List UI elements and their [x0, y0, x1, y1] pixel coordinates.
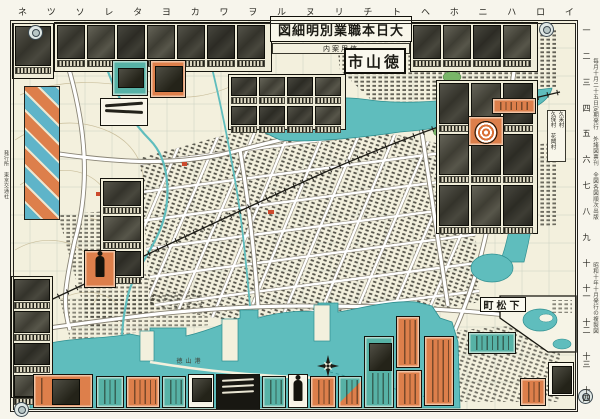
- village-names: 久米村: [557, 111, 565, 161]
- grid-kana-label: ロ: [536, 5, 545, 19]
- photo-caption: [103, 242, 141, 249]
- photo-caption: [15, 67, 51, 74]
- photo-caption: [503, 227, 533, 234]
- grid-kana-label: ル: [277, 5, 286, 19]
- photo-image: [443, 25, 471, 59]
- photo-caption: [503, 125, 533, 132]
- photo-thumbnail: [287, 106, 313, 133]
- grid-number-label: 一: [580, 26, 592, 34]
- ad-box-photo: [548, 362, 574, 396]
- photo-caption: [103, 207, 141, 214]
- photo-image: [439, 83, 469, 124]
- grid-kana-label: ヲ: [248, 5, 257, 19]
- photo-thumbnail: [57, 25, 85, 67]
- ad-box-orange: [126, 376, 160, 408]
- ad-box-figure: [84, 250, 116, 288]
- ad-box-orange: [396, 370, 422, 408]
- corner-seal-icon: [539, 22, 554, 37]
- grid-kana-label: ネ: [18, 5, 27, 19]
- photo-thumbnail: [14, 279, 50, 309]
- photo-caption: [473, 60, 501, 67]
- photo-image: [87, 25, 115, 59]
- edge-note-right-bottom: 昭和十年十月発行の複製図: [591, 262, 599, 392]
- ad-box-orange: [492, 98, 536, 114]
- ad-box-logo: [100, 98, 148, 126]
- photo-thumbnail: [87, 25, 115, 67]
- village-direction-box: 久保村 花岡村 久米村: [547, 110, 566, 162]
- photo-thumbnail: [503, 185, 533, 234]
- photo-thumbnail: [103, 216, 141, 249]
- photo-image: [439, 185, 469, 226]
- village-names: 久保村 花岡村: [549, 111, 557, 161]
- photo-image: [259, 77, 285, 96]
- ad-box-teal: [262, 376, 286, 408]
- photo-caption: [287, 97, 313, 104]
- ad-box-orange: [424, 336, 454, 406]
- ad-box-orange-photo: [33, 374, 93, 408]
- photo-caption: [14, 366, 50, 373]
- photo-caption: [439, 125, 469, 132]
- photo-thumbnail: [207, 25, 235, 67]
- ad-box-split: [338, 376, 362, 408]
- grid-kana-row: イロハニホヘトチリヌルヲワカヨタレソツネ: [18, 5, 574, 19]
- photo-image: [439, 134, 469, 175]
- map-sheet: イロハニホヘトチリヌルヲワカヨタレソツネ 一二三四五六七八九十十一十二十三十四 …: [0, 0, 600, 419]
- photo-caption: [471, 176, 501, 183]
- series-title: 図細明別業職本日大: [270, 16, 412, 42]
- photo-thumbnail: [439, 134, 469, 183]
- grid-kana-label: ハ: [507, 5, 516, 19]
- photo-image: [147, 25, 175, 59]
- grid-kana-label: ワ: [219, 5, 228, 19]
- photo-caption: [237, 60, 265, 67]
- photo-thumbnail: [315, 77, 341, 104]
- photo-caption: [315, 126, 341, 133]
- edge-note-left: 発行所 東京交通社: [2, 150, 9, 330]
- photo-thumbnail: [503, 134, 533, 183]
- photo-caption: [471, 227, 501, 234]
- photo-thumbnail: [231, 77, 257, 104]
- photo-image: [231, 77, 257, 96]
- photo-image: [57, 25, 85, 59]
- grid-kana-label: リ: [335, 5, 344, 19]
- photo-caption: [443, 60, 471, 67]
- ad-box-orange: [150, 60, 186, 98]
- grid-kana-label: チ: [363, 5, 372, 19]
- bullseye-logo-icon: [475, 121, 498, 144]
- photo-caption: [14, 334, 50, 341]
- ad-box-photo: [188, 374, 214, 408]
- photo-image: [287, 106, 313, 125]
- photo-caption: [439, 176, 469, 183]
- photo-image: [503, 134, 533, 175]
- grid-kana-label: ヌ: [306, 5, 315, 19]
- photo-cluster-top-row-right: [410, 22, 538, 72]
- ad-box-bullseye: [468, 116, 504, 146]
- figure-silhouette-icon: [96, 256, 105, 277]
- photo-caption: [413, 60, 441, 67]
- photo-thumbnail: [503, 25, 531, 67]
- photo-image: [503, 185, 533, 226]
- photo-caption: [57, 60, 85, 67]
- photo-image: [14, 311, 50, 333]
- edge-note-right-top: 毎月十月二十五日定期発行 外諸図票刊 全図各図順次出版: [591, 58, 599, 258]
- ad-box-teal: [112, 60, 148, 96]
- photo-thumbnail: [14, 311, 50, 341]
- grid-kana-label: ニ: [479, 5, 488, 19]
- corner-seal-icon: [14, 402, 29, 417]
- grid-kana-label: ヘ: [421, 5, 430, 19]
- ad-box-orange: [310, 376, 336, 408]
- grid-kana-label: カ: [191, 5, 200, 19]
- city-title-box: 市山徳: [344, 48, 406, 74]
- photo-image: [103, 181, 141, 206]
- photo-thumbnail: [413, 25, 441, 67]
- ad-box-figure: [288, 374, 308, 408]
- photo-image: [14, 343, 50, 365]
- photo-thumbnail: [287, 77, 313, 104]
- grid-kana-label: レ: [104, 5, 113, 19]
- photo-image: [471, 185, 501, 226]
- photo-caption: [503, 60, 531, 67]
- figure-silhouette-icon: [294, 380, 303, 401]
- photo-thumbnail: [473, 25, 501, 67]
- grid-kana-label: タ: [133, 5, 142, 19]
- ad-box-teal: [96, 376, 124, 408]
- photo-thumbnail: [14, 343, 50, 373]
- pond-southeast: [471, 254, 513, 282]
- grid-kana-label: イ: [565, 5, 574, 19]
- port-label: 徳山港: [150, 356, 230, 365]
- kudamatsu-label: 町松下: [480, 297, 526, 312]
- photo-image: [473, 25, 501, 59]
- ad-box-orange: [520, 378, 546, 406]
- corner-seal-icon: [28, 25, 43, 40]
- photo-image: [503, 25, 531, 59]
- photo-image: [231, 106, 257, 125]
- photo-image: [259, 106, 285, 125]
- photo-image: [117, 25, 145, 59]
- photo-thumbnail: [439, 83, 469, 132]
- photo-caption: [259, 97, 285, 104]
- photo-thumbnail: [259, 106, 285, 133]
- photo-caption: [259, 126, 285, 133]
- grid-kana-label: ソ: [76, 5, 85, 19]
- photo-thumbnail: [231, 106, 257, 133]
- photo-caption: [287, 126, 313, 133]
- photo-caption: [14, 302, 50, 309]
- photo-caption: [439, 227, 469, 234]
- grid-kana-label: ホ: [450, 5, 459, 19]
- photo-caption: [503, 176, 533, 183]
- photo-caption: [315, 97, 341, 104]
- photo-image: [237, 25, 265, 59]
- grid-kana-label: ト: [392, 5, 401, 19]
- photo-thumbnail: [315, 106, 341, 133]
- photo-caption: [207, 60, 235, 67]
- photo-image: [14, 279, 50, 301]
- photo-caption: [87, 60, 115, 67]
- ad-box-teal-photo: [364, 336, 394, 408]
- ad-box-teal: [162, 376, 186, 408]
- ad-box-teal: [468, 332, 516, 354]
- photo-image: [207, 25, 235, 59]
- ad-box-orange: [396, 316, 420, 368]
- photo-thumbnail: [259, 77, 285, 104]
- photo-image: [287, 77, 313, 96]
- photo-caption: [231, 97, 257, 104]
- photo-image: [315, 77, 341, 96]
- photo-image: [413, 25, 441, 59]
- photo-thumbnail: [471, 185, 501, 234]
- photo-cluster-under-title: [228, 74, 346, 130]
- photo-caption: [231, 126, 257, 133]
- grid-kana-label: ヨ: [162, 5, 171, 19]
- ad-diagonal-banner: [24, 86, 60, 220]
- ad-box-black: [216, 374, 260, 410]
- photo-image: [315, 106, 341, 125]
- photo-thumbnail: [443, 25, 471, 67]
- photo-thumbnail: [103, 181, 141, 214]
- photo-image: [177, 25, 205, 59]
- grid-kana-label: ツ: [47, 5, 56, 19]
- photo-thumbnail: [439, 185, 469, 234]
- photo-image: [103, 216, 141, 241]
- photo-thumbnail: [237, 25, 265, 67]
